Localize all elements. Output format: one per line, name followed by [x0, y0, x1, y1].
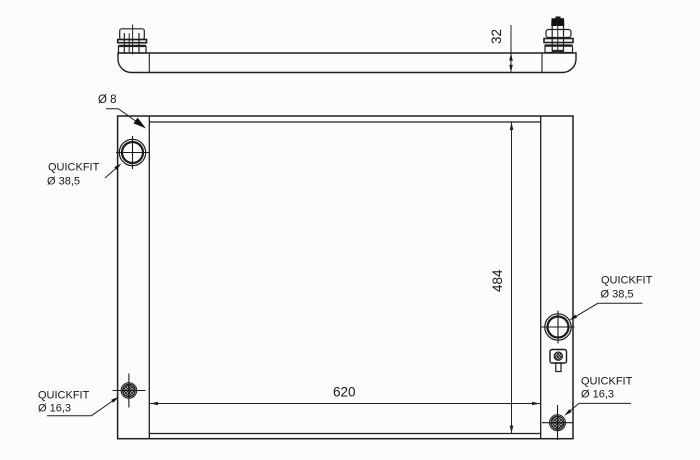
svg-text:Ø 38,5: Ø 38,5	[47, 176, 80, 188]
svg-text:484: 484	[490, 269, 505, 292]
svg-text:Ø 38,5: Ø 38,5	[601, 289, 634, 301]
svg-text:Ø 8: Ø 8	[98, 94, 117, 106]
svg-text:QUICKFIT: QUICKFIT	[601, 275, 653, 287]
svg-text:620: 620	[333, 385, 356, 400]
svg-text:32: 32	[489, 29, 504, 44]
svg-text:QUICKFIT: QUICKFIT	[48, 162, 100, 174]
svg-text:QUICKFIT: QUICKFIT	[38, 390, 90, 402]
svg-text:Ø 16,3: Ø 16,3	[38, 403, 71, 415]
svg-text:QUICKFIT: QUICKFIT	[581, 376, 633, 388]
svg-text:Ø 16,3: Ø 16,3	[581, 389, 614, 401]
